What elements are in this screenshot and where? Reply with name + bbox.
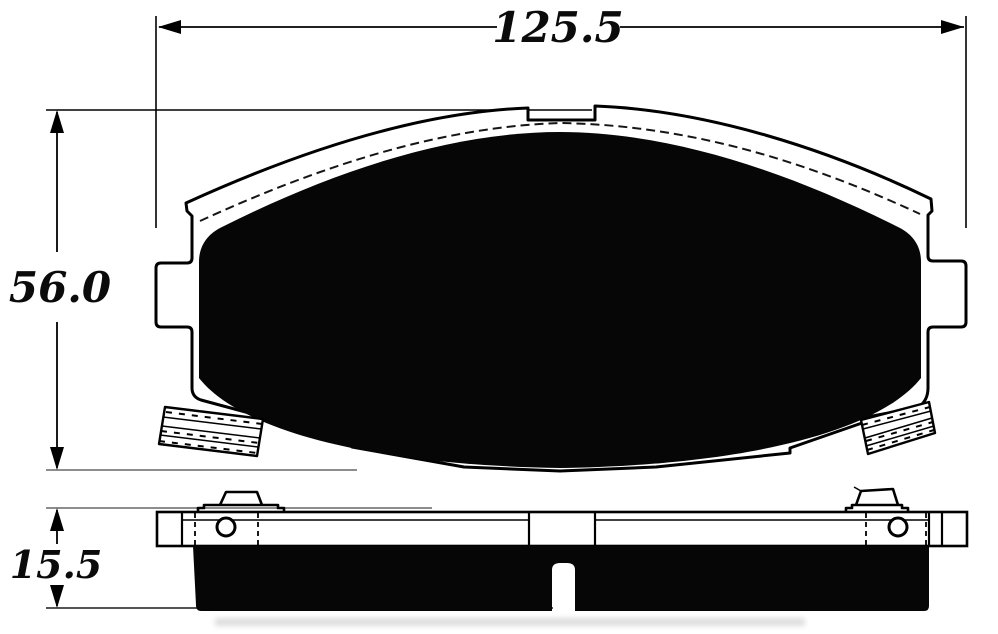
rivet-hole-right: [889, 518, 907, 536]
drawing-canvas: 125.5 56.0 15.5: [0, 0, 998, 634]
backing-plate-edge: [157, 512, 967, 546]
width-dimension-label: 125.5: [492, 3, 624, 52]
technical-drawing: 125.5 56.0 15.5: [0, 0, 998, 634]
rivet-hole-left: [217, 518, 235, 536]
height-dimension-label: 56.0: [9, 263, 111, 312]
thickness-dimension-label: 15.5: [10, 542, 103, 587]
ground-shadow: [215, 618, 805, 626]
